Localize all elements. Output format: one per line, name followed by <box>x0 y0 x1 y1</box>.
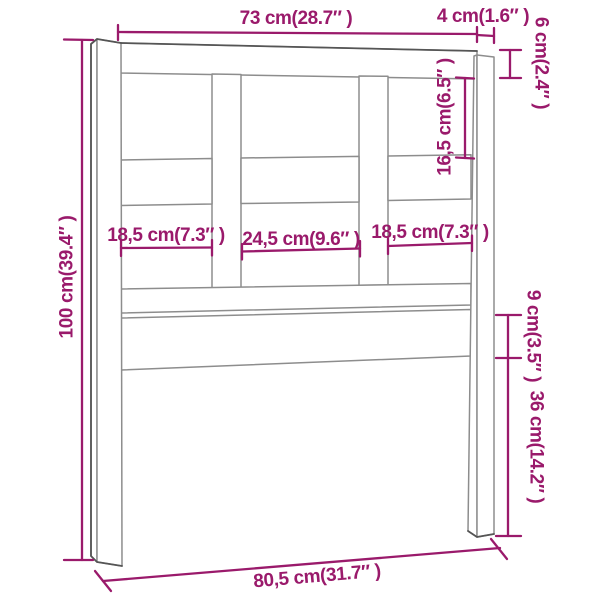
dim-lower-rail-height: 9 cm(3.5″ ) <box>496 290 543 382</box>
dim-overall-height: 100 cm(39.4″ ) <box>57 40 93 561</box>
dim-right-opening-width: 18,5 cm(7.3″ ) <box>371 222 489 254</box>
dim-post-width: 4 cm(1.6″ ) <box>437 6 529 43</box>
dim-label-lower-rail-height: 9 cm(3.5″ ) <box>522 290 543 382</box>
dim-label-post-width: 4 cm(1.6″ ) <box>437 6 529 27</box>
slat-right <box>359 76 388 285</box>
left-post-front-face <box>97 39 122 566</box>
mid-rail-center <box>241 156 359 203</box>
diagram-canvas: 73 cm(28.7″ ) 4 cm(1.6″ ) 6 cm(2.4″ ) 16… <box>0 0 600 600</box>
dim-label-top-beam-height: 6 cm(2.4″ ) <box>530 17 551 109</box>
dim-top-beam-height: 6 cm(2.4″ ) <box>500 17 551 109</box>
dim-label-overall-width-top: 73 cm(28.7″ ) <box>240 8 353 29</box>
mid-rail-left <box>121 159 212 206</box>
dim-center-opening-width: 24,5 cm(9.6″ ) <box>242 229 360 260</box>
dim-label-overall-height: 100 cm(39.4″ ) <box>57 216 78 339</box>
dim-label-left-opening-width: 18,5 cm(7.3″ ) <box>107 225 225 246</box>
dim-label-leg-height: 36 cm(14.2″ ) <box>525 391 546 504</box>
bottom-rail-upper <box>121 284 471 314</box>
mid-rail-right <box>388 155 471 201</box>
dim-overall-width-top: 73 cm(28.7″ ) <box>118 8 477 42</box>
dim-label-overall-width-bottom: 80,5 cm(31.7″ ) <box>253 561 382 593</box>
bottom-rail-lower <box>121 310 471 371</box>
top-beam <box>118 43 477 79</box>
slat-left <box>212 74 241 289</box>
dim-overall-width-bottom: 80,5 cm(31.7″ ) <box>95 539 507 592</box>
dim-left-opening-width: 18,5 cm(7.3″ ) <box>107 225 225 256</box>
dim-label-right-opening-width: 18,5 cm(7.3″ ) <box>371 222 489 243</box>
headboard-diagram: 73 cm(28.7″ ) 4 cm(1.6″ ) 6 cm(2.4″ ) 16… <box>0 0 600 600</box>
dim-leg-height: 36 cm(14.2″ ) <box>496 358 546 536</box>
headboard-drawing <box>91 39 494 566</box>
right-post-front-face <box>477 55 494 537</box>
dim-label-upper-opening-height: 16,5 cm(6.5″ ) <box>435 58 456 176</box>
dim-label-center-opening-width: 24,5 cm(9.6″ ) <box>242 229 360 250</box>
